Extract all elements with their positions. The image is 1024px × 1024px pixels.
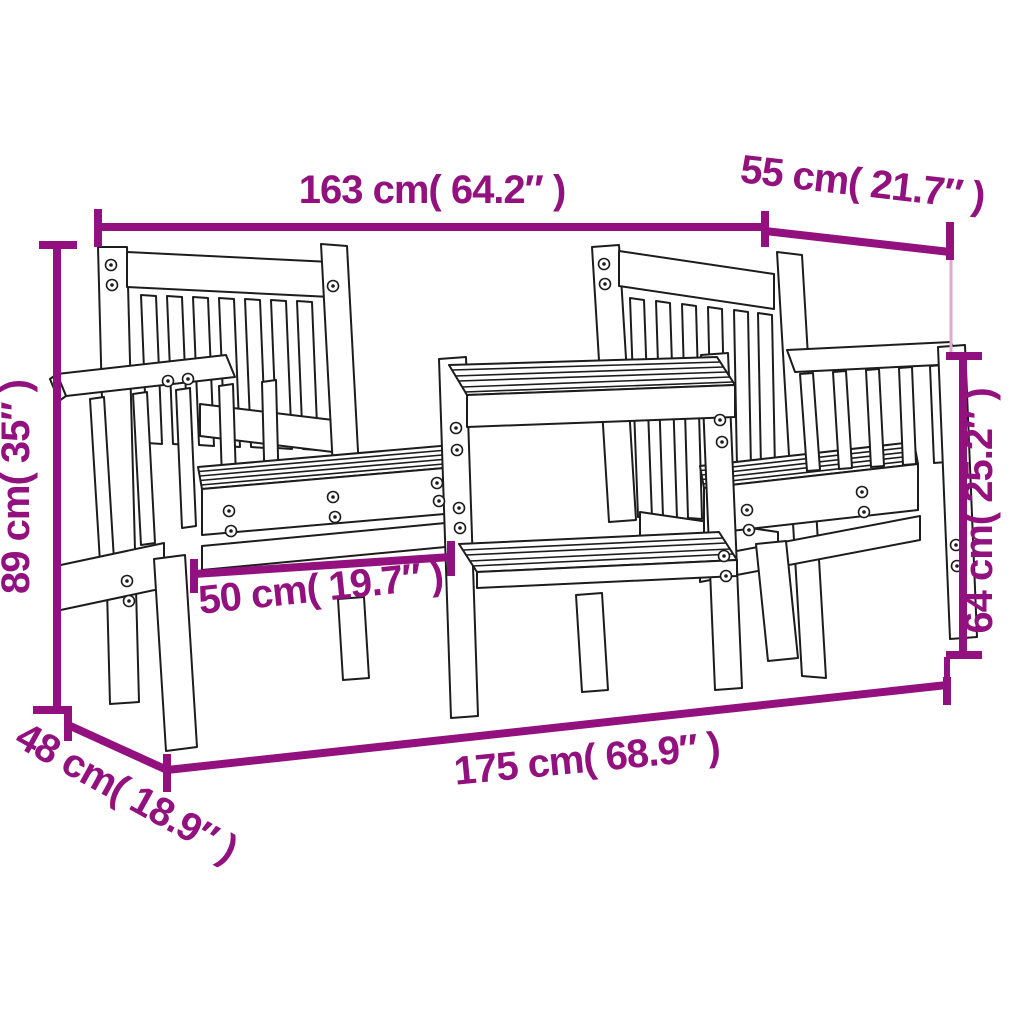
dim-left-height: 89 cm( 35″ ) [0, 245, 77, 710]
dim-bottom-depth: 48 cm( 18.9″ ) [8, 707, 244, 871]
dim-label-left-height: 89 cm( 35″ ) [0, 380, 38, 594]
dim-bottom-width: 175 cm( 68.9″ ) [167, 677, 947, 794]
dim-label-top-depth: 55 cm( 21.7″ ) [738, 147, 987, 218]
product-diagram: 163 cm( 64.2″ ) 55 cm( 21.7″ ) 89 cm( 35… [0, 0, 1024, 1024]
dim-top-depth: 55 cm( 21.7″ ) [738, 147, 987, 260]
dim-top-width: 163 cm( 64.2″ ) [98, 168, 765, 247]
dim-label-bottom-depth: 48 cm( 18.9″ ) [8, 714, 244, 871]
bench-dimension-diagram: 163 cm( 64.2″ ) 55 cm( 21.7″ ) 89 cm( 35… [0, 0, 1024, 1024]
bench-line-drawing [50, 244, 977, 751]
center-table [439, 353, 742, 718]
dim-label-right-height: 64 cm( 25.2″ ) [957, 388, 1001, 633]
dim-label-top-width: 163 cm( 64.2″ ) [299, 168, 566, 212]
left-chair [50, 244, 456, 751]
right-chair [592, 245, 977, 678]
